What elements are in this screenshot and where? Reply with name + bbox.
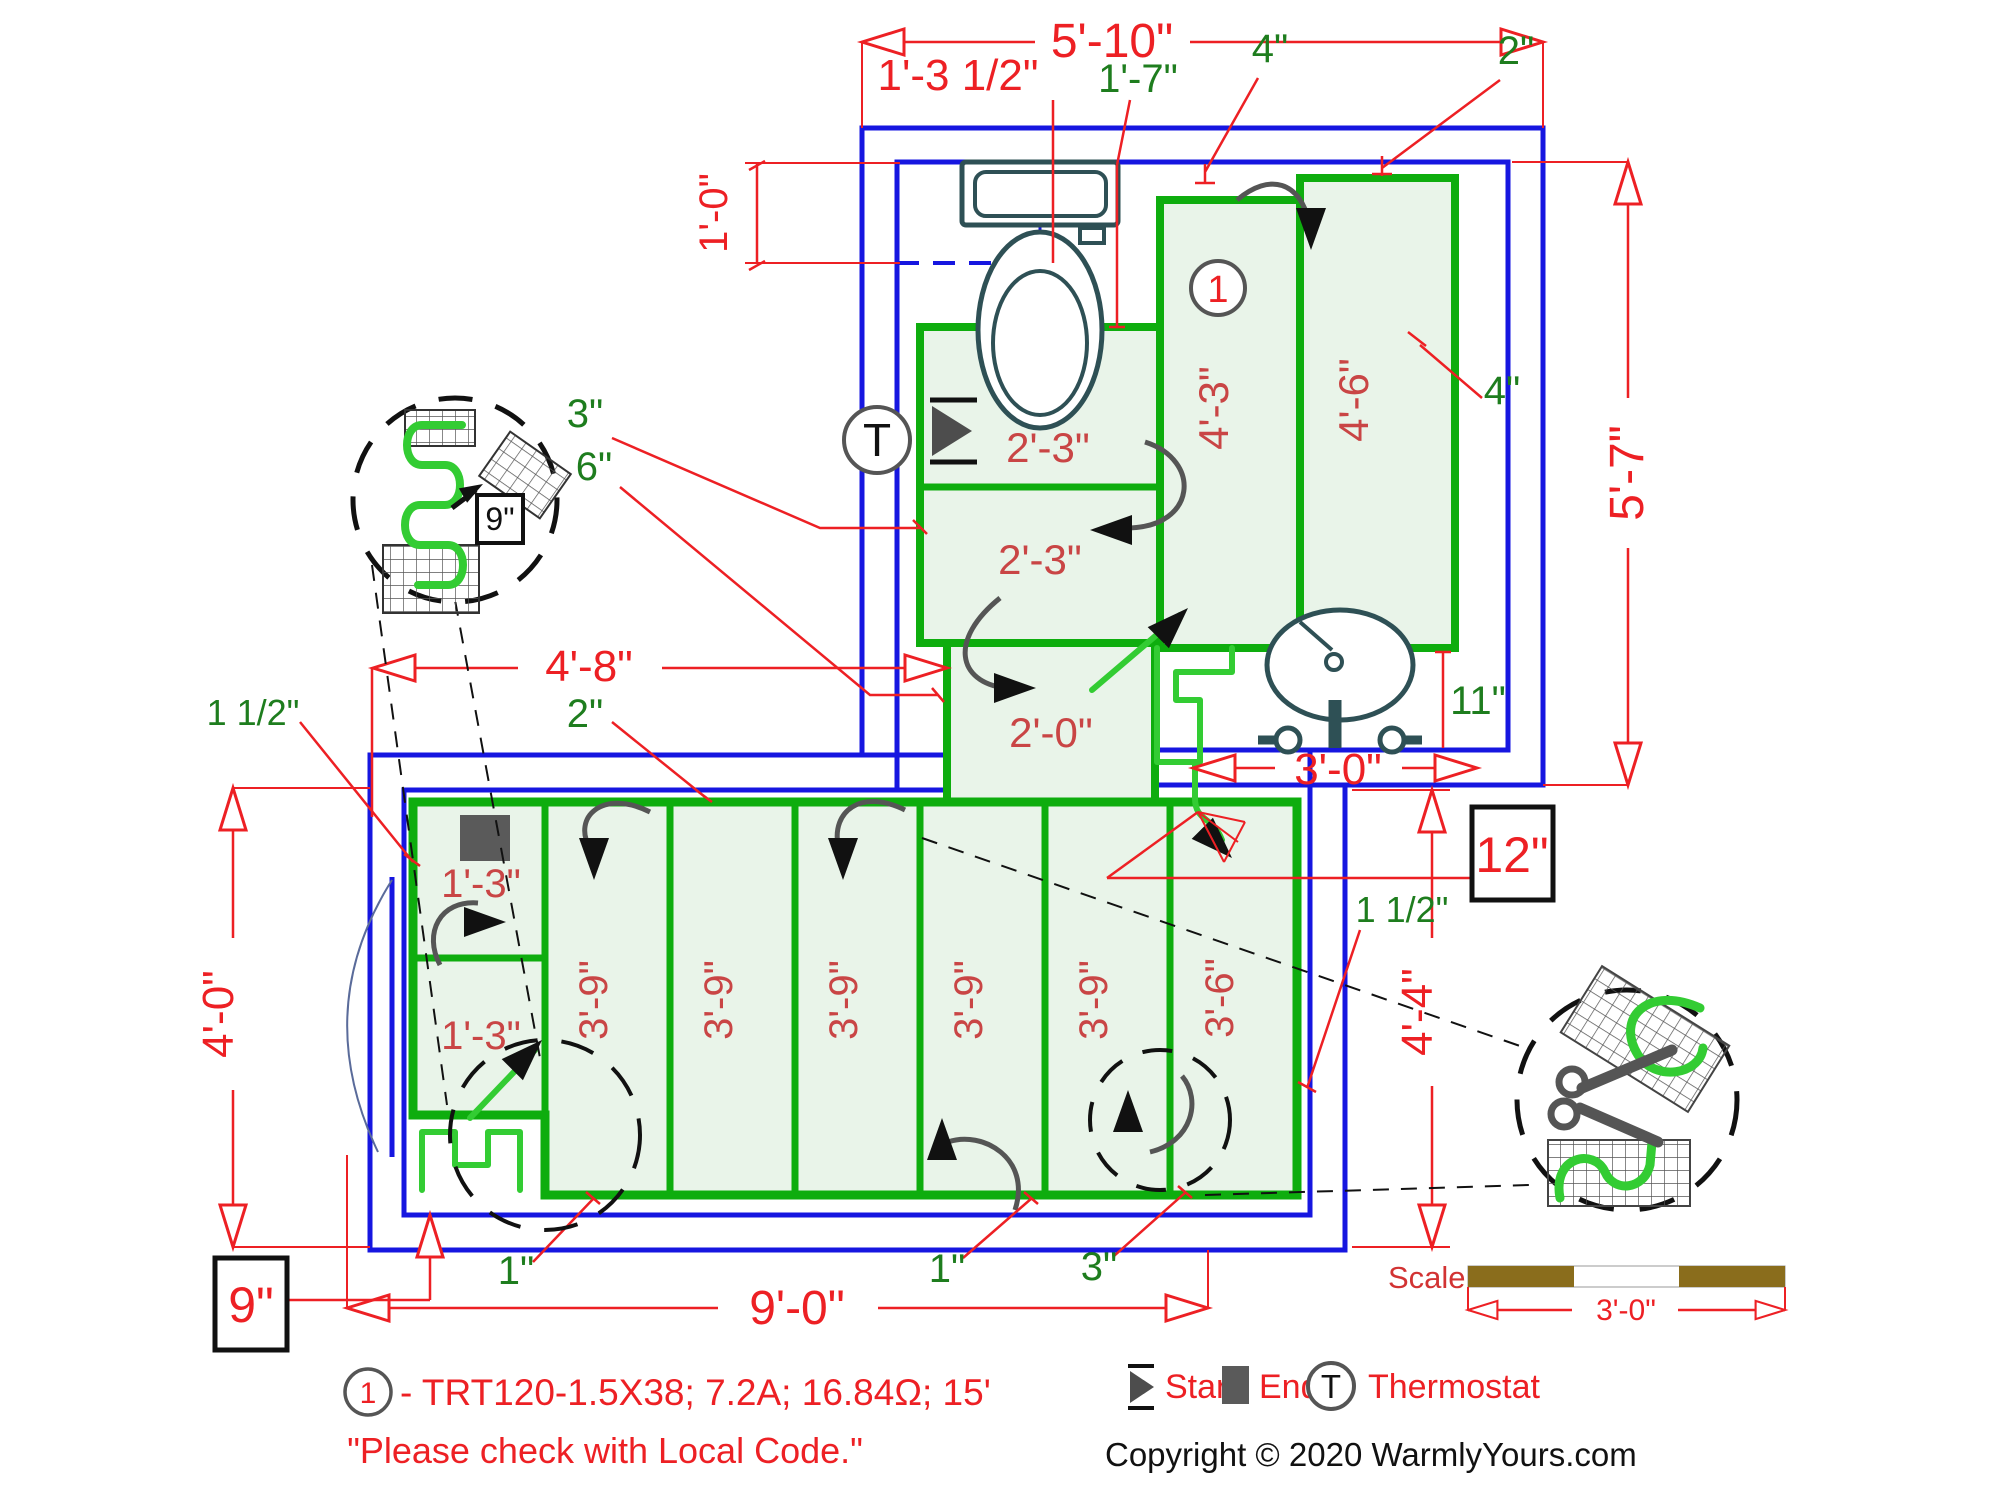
mat-label: 2'-3" <box>998 536 1082 583</box>
mat-label: 3'-9" <box>572 960 616 1040</box>
detail-circle-spacing: 9" <box>353 398 571 613</box>
mat-label: 2'-0" <box>1009 709 1093 756</box>
thermostat-symbol: T <box>863 414 891 466</box>
legend: Start End T Thermostat 1 - TRT120-1.5X38… <box>345 1363 1637 1473</box>
dim-toilet-offset: 1'-3 1/2" <box>877 51 1038 100</box>
scale-bar: Scale 3'-0" <box>1388 1260 1785 1327</box>
mat-label: 4'-3" <box>1190 366 1237 450</box>
dim-gap-right: 4" <box>1484 369 1520 413</box>
thermostat-icon: T <box>844 407 910 473</box>
callout-9-label: 9" <box>228 1277 274 1333</box>
copyright-note: Copyright © 2020 WarmlyYours.com <box>1105 1436 1637 1473</box>
dim-gap-left-top: 2" <box>567 692 603 736</box>
mat-label: 3'-6" <box>1198 958 1242 1038</box>
dim-gap-left: 1 1/2" <box>207 692 300 733</box>
dim-gap-bottom-a: 1" <box>498 1249 534 1293</box>
dim-hall-height: 4'-4" <box>1393 968 1442 1056</box>
dim-toilet-depth: 1'-0" <box>692 173 736 253</box>
dim-left-width: 4'-8" <box>545 642 633 691</box>
mat-label: 3'-9" <box>822 960 866 1040</box>
mat-label: 3'-9" <box>947 960 991 1040</box>
product-note: - TRT120-1.5X38; 7.2A; 16.84Ω; 15' <box>400 1372 991 1413</box>
dim-room-height: 4'-0" <box>194 970 243 1058</box>
dim-gap-mid-b: 6" <box>576 445 612 489</box>
dim-sink-width: 3'-0" <box>1294 745 1382 794</box>
dim-room-width: 9'-0" <box>749 1282 845 1335</box>
zone-number: 1 <box>1207 269 1228 311</box>
scale-value: 3'-0" <box>1596 1294 1656 1327</box>
callout-12-label: 12" <box>1475 827 1548 883</box>
zone-badge: 1 <box>1191 261 1245 315</box>
mat-label: 2'-3" <box>1006 424 1090 471</box>
legend-start-icon <box>1128 1366 1154 1408</box>
mat-label: 1'-3" <box>441 1014 521 1058</box>
dim-sink-gap: 11" <box>1450 679 1506 723</box>
scale-label: Scale <box>1388 1260 1466 1295</box>
legend-thermostat-symbol: T <box>1321 1368 1341 1405</box>
mat-label: 1'-3" <box>441 862 521 906</box>
legend-end-icon <box>1222 1366 1249 1404</box>
dim-gap-top-a: 4" <box>1252 27 1288 71</box>
dim-gap-hall: 1 1/2" <box>1356 889 1449 930</box>
disclaimer-note: "Please check with Local Code." <box>347 1430 863 1471</box>
floor-plan-svg: T 1 2'-3" 2'-3" 2'-0" 4'-3" 4'-6" 1'-3" … <box>0 0 2000 1499</box>
mat-label: 3'-9" <box>1072 960 1116 1040</box>
mat-run-4-6 <box>1300 178 1455 648</box>
dim-right-height: 5'-7" <box>1601 425 1654 521</box>
floor-plan-page: T 1 2'-3" 2'-3" 2'-0" 4'-3" 4'-6" 1'-3" … <box>0 0 2000 1499</box>
detail-9-label: 9" <box>485 501 514 537</box>
legend-thermostat-label: Thermostat <box>1368 1368 1540 1406</box>
note-ref-number: 1 <box>360 1377 377 1410</box>
wire-coldlead-weave <box>422 1132 520 1190</box>
wire-sink-weave <box>1157 648 1232 762</box>
dim-toilet-mat-width: 1'-7" <box>1098 57 1178 101</box>
detail-circle-cutting <box>1517 966 1737 1210</box>
dim-gap-mid-a: 3" <box>567 392 603 436</box>
dim-gap-bottom-b: 1" <box>929 1247 965 1291</box>
dim-gap-bottom-c: 3" <box>1081 1245 1117 1289</box>
mat-label: 4'-6" <box>1330 358 1377 442</box>
mat-label: 3'-9" <box>697 960 741 1040</box>
sink-icon <box>1258 610 1422 752</box>
dim-gap-top-b: 2" <box>1498 29 1534 73</box>
